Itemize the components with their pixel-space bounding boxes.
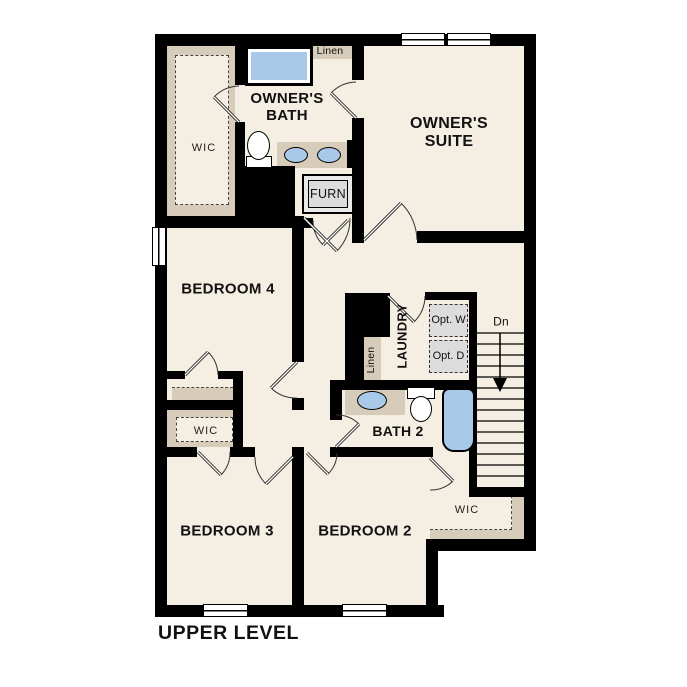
optional-washer: Opt. W: [429, 304, 468, 337]
wall: [524, 34, 536, 551]
room-label-bedroom2: BEDROOM 2: [300, 524, 430, 541]
room-label-bath2: BATH 2: [363, 424, 433, 440]
wall: [330, 390, 342, 420]
wall: [330, 447, 423, 457]
bedroom4-closet-rod-line: [172, 387, 233, 388]
wall: [426, 539, 438, 617]
wall: [218, 371, 243, 379]
sink-owners-left: [284, 147, 308, 163]
wall: [167, 371, 185, 379]
wall: [347, 140, 364, 168]
sink-owners-right: [317, 147, 341, 163]
room-label-bedroom3: BEDROOM 3: [162, 524, 292, 541]
closet-label-linen-top: Linen: [317, 46, 344, 58]
wall: [235, 46, 245, 85]
owners-wic-shelf-line: [175, 55, 229, 205]
room-label-owners-suite: OWNER'S SUITE: [394, 115, 504, 151]
room-label-owners-bath: OWNER'S BATH: [237, 91, 337, 125]
plan-title: UPPER LEVEL: [158, 623, 358, 645]
room-label-wic-bedroom2: WIC: [455, 504, 479, 516]
wall: [469, 487, 536, 497]
wall: [167, 447, 197, 457]
wall: [426, 539, 536, 551]
toilet-bath2-bowl: [410, 396, 432, 422]
bathtub-bath2: [442, 388, 475, 452]
window: [447, 33, 491, 46]
wall: [235, 122, 245, 216]
furnace-label: FURN: [308, 180, 348, 208]
wall: [292, 216, 304, 362]
wall: [155, 400, 243, 410]
wall: [352, 46, 364, 80]
wall: [417, 231, 536, 243]
toilet-owners-bowl: [247, 131, 270, 160]
window: [342, 604, 387, 617]
bathtub-owners: [245, 46, 313, 86]
wall: [292, 398, 304, 410]
optional-dryer: Opt. D: [429, 340, 468, 373]
window: [203, 604, 248, 617]
wall: [233, 379, 243, 400]
bedroom4-closet-shelf: [172, 388, 233, 400]
room-label-wic-owner: WIC: [192, 142, 216, 154]
utility-chase: [345, 293, 390, 337]
window: [401, 33, 445, 46]
window: [152, 227, 166, 266]
stairs-down-label: Dn: [493, 315, 509, 328]
wall: [230, 447, 255, 457]
room-label-wic-bedroom3: WIC: [194, 425, 218, 437]
floor-plan: FURN Opt. W Opt. D: [0, 0, 687, 687]
closet-label-linen-hall: Linen: [366, 347, 378, 374]
room-label-laundry: LAUNDRY: [396, 303, 411, 368]
furnace-closet: FURN: [302, 174, 354, 214]
room-label-bedroom4: BEDROOM 4: [163, 282, 293, 299]
exterior-cutout: [438, 551, 524, 605]
sink-bath2: [357, 391, 387, 410]
